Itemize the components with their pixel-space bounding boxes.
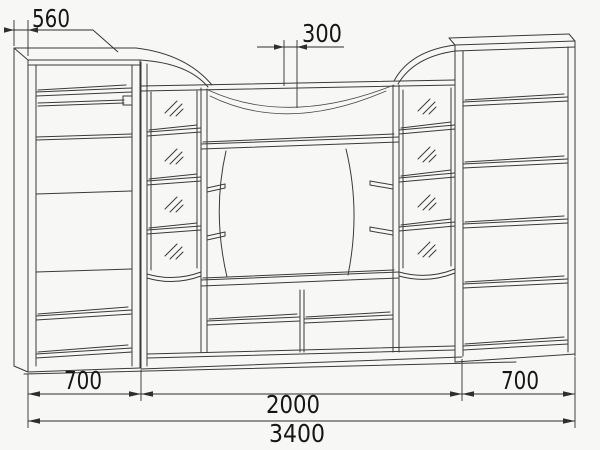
niche-top-shelf <box>201 134 399 149</box>
dimension-depth-label: 560 <box>32 4 70 33</box>
mirror-hatch-icon <box>418 242 436 257</box>
dimension-annotations: 560 300 700 2000 700 3400 <box>4 4 575 448</box>
mirror-column-right <box>399 88 455 279</box>
tv-base <box>141 290 462 369</box>
dimension-right-width-label: 700 <box>501 366 539 395</box>
wardrobe-left <box>14 48 140 372</box>
niche-bracket-shelves <box>207 181 393 240</box>
mirror-hatch-icon <box>165 244 183 259</box>
dimension-center-width-label: 2000 <box>266 390 320 419</box>
mirror-hatch-icon <box>165 197 183 212</box>
dimension-top-gap-label: 300 <box>302 19 342 48</box>
wardrobe-side-panel <box>14 48 28 372</box>
bookcase-shelves <box>463 94 568 350</box>
mirror-hatch-icon <box>418 195 436 210</box>
hanging-rail <box>38 96 132 106</box>
wardrobe-top-shelf <box>36 85 132 96</box>
dimension-top-gap: 300 <box>257 19 344 108</box>
mirror-hatch-icon <box>418 99 436 114</box>
dimension-bottom-chain: 700 2000 700 3400 <box>28 357 575 448</box>
mirror-hatch-icon <box>418 147 436 162</box>
furniture-drawing-canvas: 560 300 700 2000 700 3400 <box>0 0 600 450</box>
wardrobe-lower-shelves <box>36 307 132 358</box>
tv-niche <box>201 149 399 286</box>
bookcase-right <box>449 34 575 362</box>
mirror-hatch-icon <box>165 101 183 116</box>
dimension-left-width-label: 700 <box>64 366 102 395</box>
dimension-total-width-label: 3400 <box>269 419 325 448</box>
furniture-technical-drawing: 560 300 700 2000 700 3400 <box>0 0 600 450</box>
rail-bracket <box>123 96 132 105</box>
mirror-column-left <box>147 91 201 282</box>
mirror-hatch-icon <box>165 149 183 164</box>
center-section <box>136 45 462 369</box>
